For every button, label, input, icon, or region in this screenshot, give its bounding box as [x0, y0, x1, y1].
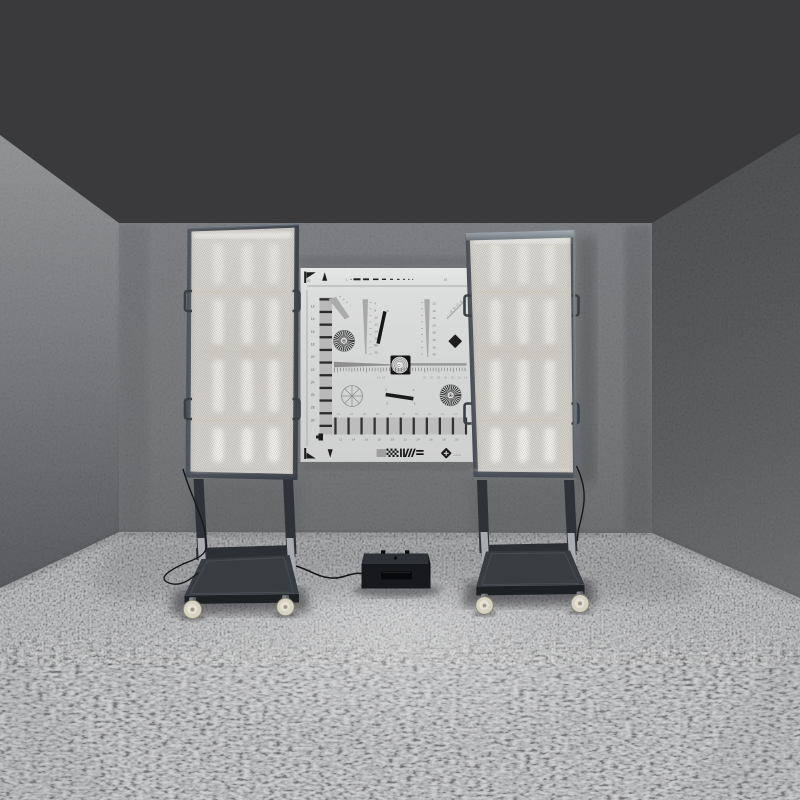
- svg-text:14: 14: [441, 412, 445, 416]
- svg-text:16: 16: [444, 278, 448, 282]
- svg-text:20: 20: [375, 351, 379, 355]
- svg-text:18: 18: [378, 438, 382, 442]
- svg-text:28: 28: [442, 438, 446, 442]
- svg-text:36: 36: [433, 345, 437, 349]
- svg-text:16: 16: [382, 376, 386, 380]
- svg-text:iso12233: iso12233: [453, 455, 462, 457]
- svg-text:24: 24: [433, 323, 437, 327]
- svg-text:12: 12: [339, 438, 343, 442]
- svg-text:22: 22: [428, 412, 432, 416]
- svg-text:12: 12: [375, 323, 379, 327]
- svg-text:22: 22: [311, 368, 315, 372]
- svg-text:12: 12: [311, 305, 315, 309]
- svg-text:24: 24: [311, 380, 315, 384]
- svg-text:26: 26: [311, 393, 315, 397]
- svg-text:12: 12: [433, 302, 437, 306]
- svg-text:16: 16: [350, 412, 354, 416]
- svg-text:28: 28: [311, 406, 315, 410]
- svg-text:20: 20: [451, 376, 455, 380]
- svg-text:20: 20: [390, 438, 394, 442]
- svg-text:14: 14: [377, 376, 381, 380]
- svg-text:22: 22: [403, 438, 407, 442]
- svg-text:14: 14: [464, 376, 468, 380]
- svg-text:14: 14: [375, 330, 379, 334]
- svg-text:30: 30: [455, 438, 459, 442]
- svg-text:20: 20: [363, 412, 367, 416]
- svg-text:14: 14: [352, 438, 356, 442]
- svg-text:28: 28: [437, 376, 441, 380]
- svg-text:24: 24: [376, 412, 380, 416]
- svg-text:28: 28: [389, 412, 393, 416]
- svg-text:14: 14: [311, 317, 315, 321]
- svg-text:32: 32: [430, 376, 434, 380]
- svg-text:20: 20: [433, 316, 437, 320]
- svg-text:10: 10: [375, 316, 379, 320]
- svg-text:16: 16: [433, 309, 437, 313]
- svg-text:24: 24: [415, 412, 419, 416]
- svg-text:14: 14: [454, 412, 458, 416]
- svg-text:26: 26: [423, 376, 427, 380]
- svg-text:40: 40: [433, 353, 437, 357]
- svg-text:32: 32: [433, 338, 437, 342]
- svg-text:18: 18: [311, 342, 315, 346]
- svg-text:30: 30: [311, 418, 315, 422]
- svg-text:26: 26: [429, 438, 433, 442]
- svg-text:16: 16: [458, 376, 462, 380]
- svg-text:16: 16: [365, 438, 369, 442]
- svg-text:20: 20: [311, 355, 315, 359]
- svg-text:10: 10: [307, 279, 311, 283]
- svg-text:24: 24: [444, 376, 448, 380]
- svg-text:12: 12: [337, 412, 341, 416]
- svg-text:24: 24: [416, 438, 420, 442]
- svg-text:16: 16: [311, 330, 315, 334]
- svg-text:30: 30: [402, 412, 406, 416]
- svg-text:28: 28: [433, 331, 437, 335]
